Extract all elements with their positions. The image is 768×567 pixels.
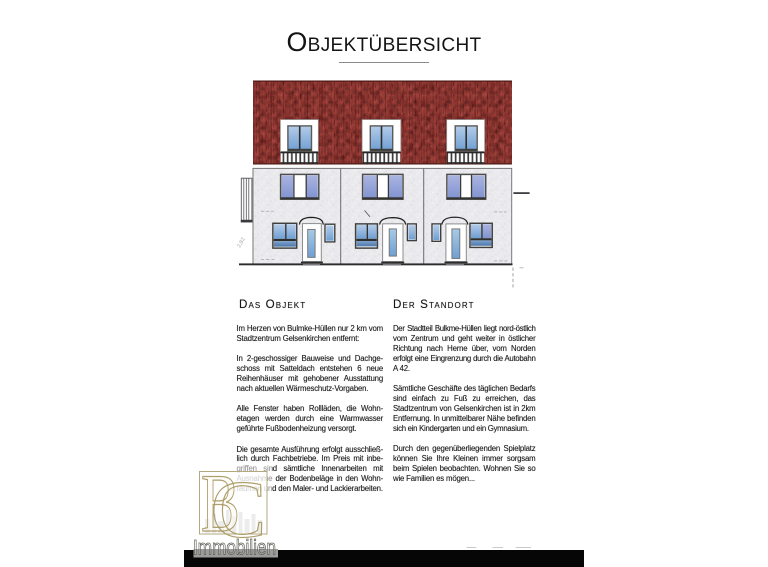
svg-text:2,82: 2,82 — [236, 237, 246, 249]
svg-text:Immobilien: Immobilien — [193, 537, 276, 560]
